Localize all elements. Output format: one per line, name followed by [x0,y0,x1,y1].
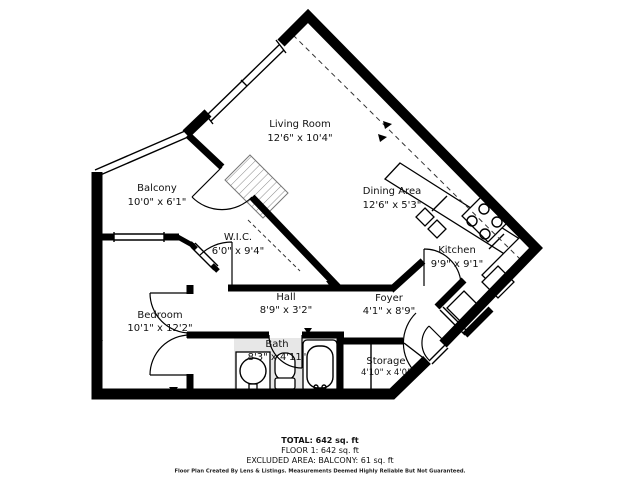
room-label-bedroom: Bedroom 10'1" x 12'2" [127,310,192,334]
ceiling-break-line [293,35,523,262]
svg-text:Hall: Hall [276,292,295,303]
svg-text:10'0" x 6'1": 10'0" x 6'1" [128,197,187,208]
svg-text:Living Room: Living Room [269,119,330,130]
svg-text:Bath: Bath [265,339,288,350]
svg-text:Dining Area: Dining Area [363,186,421,197]
room-label-foyer: Foyer 4'1" x 8'9" [363,293,415,317]
svg-text:4'1" x 8'9": 4'1" x 8'9" [363,306,415,317]
disclaimer-text: Floor Plan Created By Lens & Listings. M… [174,469,465,475]
svg-text:6'0" x 9'4": 6'0" x 9'4" [212,246,264,257]
hatch-area [225,155,288,218]
room-label-dining-area: Dining Area 12'6" x 5'3" [363,186,422,211]
svg-text:Foyer: Foyer [375,293,404,304]
total-area-text: TOTAL: 642 sq. ft [281,436,359,445]
svg-text:8'3" x 4'11": 8'3" x 4'11" [248,352,307,363]
svg-text:10'1" x 12'2": 10'1" x 12'2" [127,323,192,334]
svg-text:Storage: Storage [366,356,405,367]
room-label-living-room: Living Room 12'6" x 10'4" [267,119,332,144]
floor1-area-text: FLOOR 1: 642 sq. ft [281,446,359,455]
svg-text:Balcony: Balcony [137,183,177,194]
area-summary: TOTAL: 642 sq. ft FLOOR 1: 642 sq. ft EX… [174,436,465,475]
room-label-storage: Storage 4'10" x 4'0" [361,356,411,378]
svg-text:Kitchen: Kitchen [438,245,476,256]
floor-plan-drawing: Living Room 12'6" x 10'4" Balcony 10'0" … [0,0,640,480]
balcony-railing [95,131,188,176]
room-label-balcony: Balcony 10'0" x 6'1" [128,183,187,208]
floor-plan-page: Living Room 12'6" x 10'4" Balcony 10'0" … [0,0,640,480]
svg-text:12'6" x 5'3": 12'6" x 5'3" [363,200,422,211]
room-label-hall: Hall 8'9" x 3'2" [260,292,312,316]
svg-text:12'6" x 10'4": 12'6" x 10'4" [267,133,332,144]
room-label-kitchen: Kitchen 9'9" x 9'1" [431,245,483,270]
excluded-area-text: EXCLUDED AREA: BALCONY: 61 sq. ft [246,456,393,465]
svg-text:Bedroom: Bedroom [137,310,182,321]
room-label-wic: W.I.C. 6'0" x 9'4" [212,232,264,257]
svg-text:9'9" x 9'1": 9'9" x 9'1" [431,259,483,270]
svg-text:4'10" x 4'0": 4'10" x 4'0" [361,368,411,378]
svg-text:W.I.C.: W.I.C. [224,232,252,243]
svg-text:8'9" x 3'2": 8'9" x 3'2" [260,305,312,316]
bathtub-icon [303,340,337,392]
